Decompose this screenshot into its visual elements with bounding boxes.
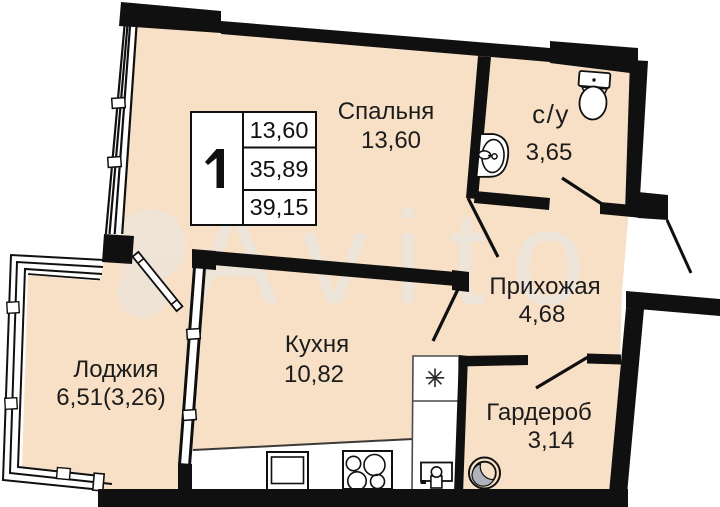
svg-text:Гардероб: Гардероб <box>486 399 592 426</box>
svg-text:Лоджия: Лоджия <box>73 356 158 383</box>
svg-text:с/у: с/у <box>532 99 570 129</box>
svg-text:4,68: 4,68 <box>519 301 566 328</box>
svg-text:13,60: 13,60 <box>250 117 309 143</box>
svg-text:6,51(3,26): 6,51(3,26) <box>56 384 165 411</box>
svg-text:Кухня: Кухня <box>285 331 349 358</box>
svg-text:35,89: 35,89 <box>250 156 309 182</box>
svg-text:3,65: 3,65 <box>526 139 573 166</box>
svg-text:39,15: 39,15 <box>250 194 309 220</box>
svg-text:10,82: 10,82 <box>284 361 344 388</box>
svg-text:13,60: 13,60 <box>361 127 421 154</box>
svg-text:Прихожая: Прихожая <box>489 273 600 300</box>
svg-text:3,14: 3,14 <box>528 427 575 454</box>
svg-text:Спальня: Спальня <box>338 98 434 125</box>
